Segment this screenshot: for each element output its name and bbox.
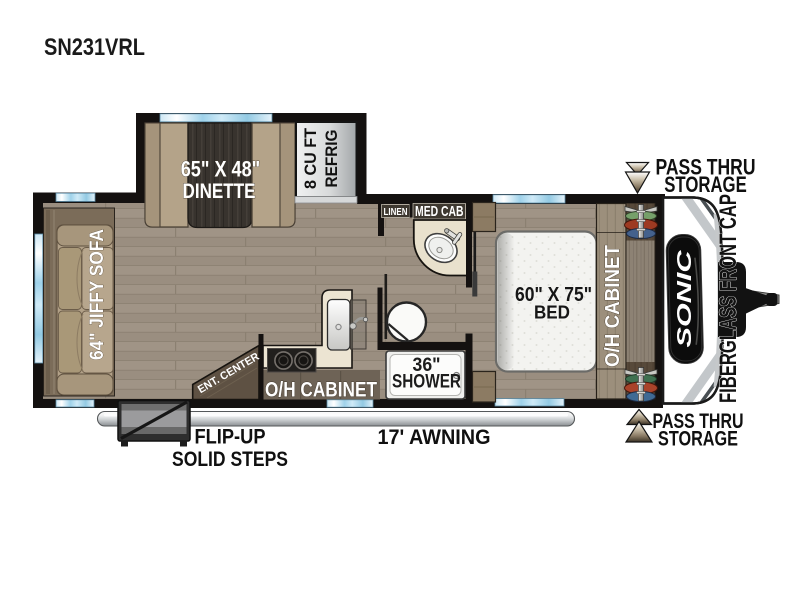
- svg-text:65" X 48": 65" X 48": [181, 157, 261, 182]
- svg-text:SONIC: SONIC: [674, 250, 696, 348]
- svg-text:DINETTE: DINETTE: [183, 180, 256, 203]
- svg-text:8 CU FT: 8 CU FT: [301, 127, 320, 189]
- svg-text:STORAGE: STORAGE: [658, 427, 738, 450]
- svg-text:SHOWER: SHOWER: [392, 371, 461, 393]
- svg-text:LINEN: LINEN: [384, 206, 408, 218]
- svg-text:64" JIFFY SOFA: 64" JIFFY SOFA: [87, 229, 108, 360]
- svg-text:REFRIG: REFRIG: [322, 130, 341, 188]
- svg-text:MED CAB: MED CAB: [415, 203, 464, 220]
- svg-text:BED: BED: [534, 303, 570, 323]
- svg-text:O/H CABINET: O/H CABINET: [602, 245, 624, 367]
- svg-text:O/H CABINET: O/H CABINET: [265, 379, 377, 402]
- svg-text:SN231VRL: SN231VRL: [44, 34, 145, 61]
- svg-text:FIBERGLASS FRONT CAP: FIBERGLASS FRONT CAP: [715, 194, 742, 403]
- svg-text:SOLID STEPS: SOLID STEPS: [172, 447, 288, 471]
- svg-text:FLIP-UP: FLIP-UP: [195, 425, 266, 449]
- svg-text:STORAGE: STORAGE: [664, 172, 747, 197]
- svg-text:17' AWNING: 17' AWNING: [378, 425, 491, 449]
